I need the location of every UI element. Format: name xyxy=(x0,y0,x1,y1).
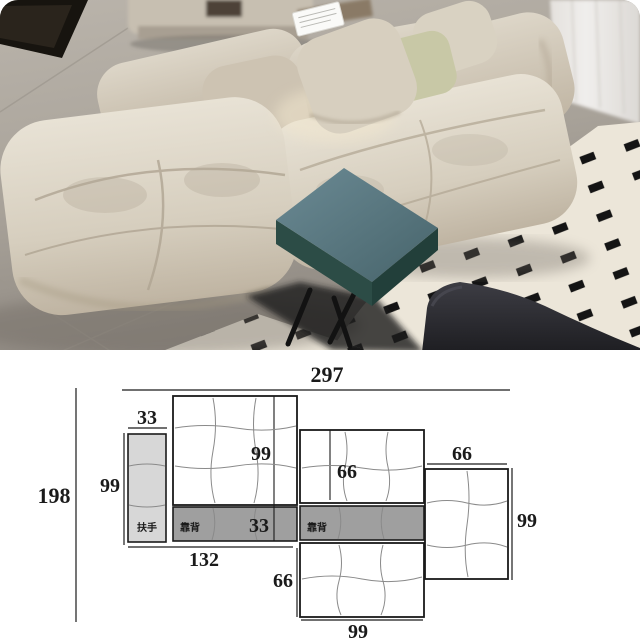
sofa-photo-scene xyxy=(0,0,640,350)
left-seat-box xyxy=(173,396,297,505)
dim-total-width: 297 xyxy=(311,362,344,387)
dim-right-seat-width: 66 xyxy=(452,443,472,465)
dim-mid-seat-width: 66 xyxy=(337,461,357,483)
label-backrest-left: 靠背 xyxy=(180,521,200,534)
right-seat-box xyxy=(425,469,508,579)
dimension-diagram-svg: 297 198 33 99 99 33 132 66 66 99 66 99 扶… xyxy=(0,352,640,640)
dim-ottoman-width: 99 xyxy=(348,621,368,640)
product-card: 297 198 33 99 99 33 132 66 66 99 66 99 扶… xyxy=(0,0,640,640)
dim-armrest-length: 99 xyxy=(100,475,120,497)
dim-armrest-width: 33 xyxy=(137,407,157,429)
label-armrest: 扶手 xyxy=(137,521,157,534)
dimension-diagram: 297 198 33 99 99 33 132 66 66 99 66 99 扶… xyxy=(0,352,640,640)
dim-left-section-width: 132 xyxy=(189,549,219,571)
sofa-photo xyxy=(0,0,640,350)
dim-left-seat-width: 99 xyxy=(251,443,271,465)
dim-ottoman-depth: 66 xyxy=(273,570,293,592)
dim-total-depth: 198 xyxy=(38,483,71,508)
dim-backrest-depth: 33 xyxy=(249,515,269,537)
module-boxes xyxy=(128,396,508,617)
label-backrest-mid: 靠背 xyxy=(307,521,327,534)
dim-right-seat-depth: 99 xyxy=(517,510,537,532)
